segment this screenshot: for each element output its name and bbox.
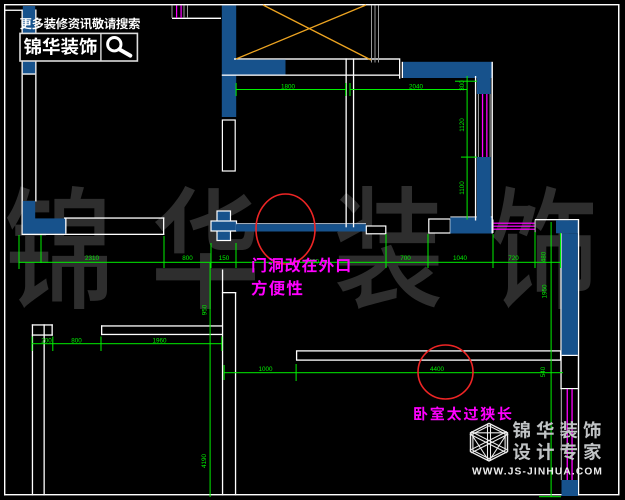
svg-text:4400: 4400 (430, 366, 445, 373)
svg-text:1120: 1120 (459, 118, 466, 132)
svg-text:800: 800 (182, 255, 193, 262)
svg-text:200: 200 (41, 337, 52, 344)
svg-text:480: 480 (541, 251, 548, 262)
svg-text:720: 720 (508, 255, 519, 262)
svg-text:300: 300 (459, 80, 466, 91)
svg-text:950: 950 (202, 304, 209, 315)
svg-text:800: 800 (71, 337, 82, 344)
svg-text:1100: 1100 (459, 181, 466, 195)
svg-text:2310: 2310 (85, 255, 100, 262)
svg-text:1800: 1800 (281, 84, 296, 91)
svg-text:1040: 1040 (453, 255, 468, 262)
svg-text:540: 540 (540, 366, 547, 377)
svg-text:2040: 2040 (409, 84, 424, 91)
svg-text:150: 150 (219, 255, 230, 262)
svg-text:1000: 1000 (258, 366, 273, 373)
svg-text:700: 700 (400, 255, 411, 262)
svg-text:4190: 4190 (201, 454, 208, 469)
svg-text:WWW.JS-JINHUA.COM: WWW.JS-JINHUA.COM (472, 467, 603, 478)
svg-text:1950: 1950 (542, 284, 549, 299)
svg-text:1960: 1960 (152, 337, 167, 344)
